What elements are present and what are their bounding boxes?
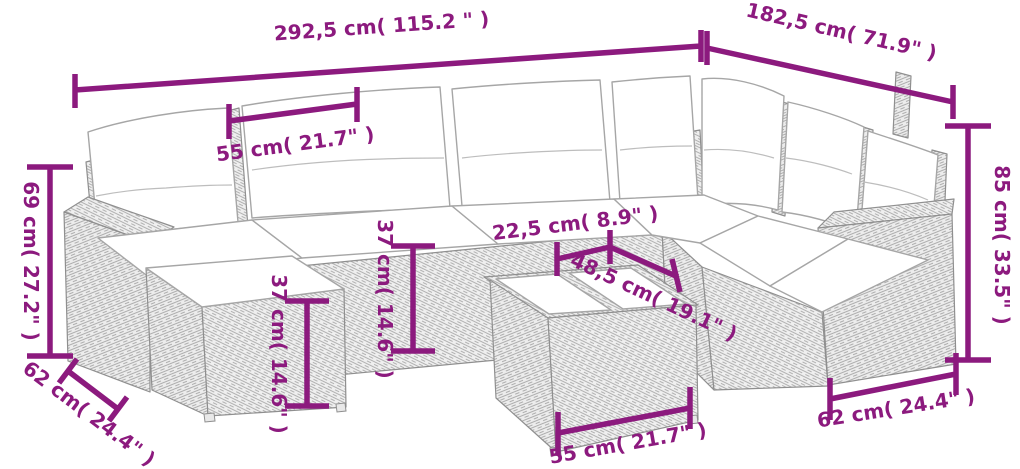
ottoman-foot <box>336 403 346 412</box>
back-pillow <box>612 76 698 202</box>
ottoman <box>146 256 346 422</box>
dimension-armrest-height-label: 69 cm( 27.2" ) <box>19 181 43 340</box>
dimension-overall-width-label: 292,5 cm( 115.2 " ) <box>273 7 490 46</box>
back-post <box>893 72 911 138</box>
dimension-diagram: 292,5 cm( 115.2 " ) 182,5 cm( 71.9" ) 55… <box>0 0 1020 469</box>
ottoman-foot <box>204 413 215 422</box>
back-pillow-corner <box>702 78 784 210</box>
dimension-armrest-depth-label: 62 cm( 24.4" ) <box>815 384 976 433</box>
dimension-overall-depth-label: 182,5 cm( 71.9" ) <box>744 0 939 65</box>
dimension-seat-height-label: 37 cm( 14.6" ) <box>373 219 397 378</box>
rattan-sofa <box>64 72 956 456</box>
back-pillow <box>452 80 610 206</box>
dimension-ottoman-height-label: 37 cm( 14.6" ) <box>267 274 291 433</box>
dimension-overall-height-label: 85 cm( 33.5" ) <box>990 165 1014 324</box>
sofa-dimension-illustration: 292,5 cm( 115.2 " ) 182,5 cm( 71.9" ) 55… <box>0 0 1020 469</box>
